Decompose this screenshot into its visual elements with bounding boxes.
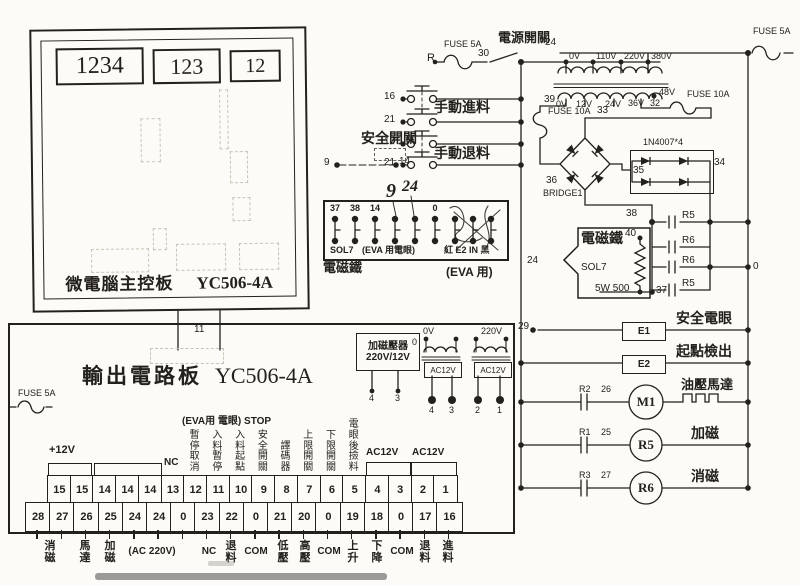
scan-artifact — [91, 248, 149, 273]
terminal-cell-bottom: 28 — [25, 502, 51, 532]
terminal-column-label: 譯碼器 — [279, 442, 292, 474]
terminal-bottom-label: 進料 — [441, 541, 455, 564]
safety-from-9: 9 — [324, 158, 330, 169]
terminal-cell-top: 14 — [115, 475, 140, 504]
bridge-name: BRIDGE1 — [543, 189, 583, 198]
terminal-cell-bottom: 22 — [219, 502, 245, 532]
terminal-cell-top: 15 — [47, 475, 72, 504]
terminal-cell-top: 6 — [320, 475, 345, 504]
terminal-column-label: 暫停取消 — [188, 431, 201, 474]
sol7-terminal-number: 14 — [367, 203, 383, 213]
terminal-cell-top: 7 — [297, 475, 322, 504]
wire-25-label: 25 — [601, 428, 611, 437]
magnetize-transformer-name: 加磁壓器 — [357, 337, 419, 352]
terminal-cell-bottom: 26 — [73, 502, 99, 532]
diode-block-box — [630, 150, 714, 194]
sol7-terminal-number: 0 — [427, 203, 443, 213]
output-label-demagnetize: 消磁 — [691, 469, 719, 484]
terminal-cell-bottom: 0 — [315, 502, 341, 532]
mt-terminal-3: 3 — [395, 394, 400, 403]
manual-retract-label: 手動退料 — [434, 146, 490, 161]
terminal-bottom-label: COM — [390, 546, 413, 557]
terminal-tick — [278, 530, 279, 539]
mini-t2-secondary: AC12V — [474, 362, 512, 378]
fuse-10a-left-label: FUSE 10A — [548, 107, 591, 116]
wire-26-label: 26 — [601, 385, 611, 394]
display-value: 1234 — [76, 53, 124, 81]
terminal-tick — [303, 530, 304, 539]
output-board-model: YC506-4A — [215, 364, 313, 387]
main-control-board: 1234 123 12 微電腦主控板 YC506-4A — [29, 26, 309, 312]
terminal-cell-bottom: 17 — [412, 502, 438, 532]
mini-t1-secondary-label: AC12V — [430, 366, 455, 375]
scan-artifact — [140, 118, 161, 162]
output-label-hydraulic-motor: 油壓馬達 — [681, 378, 733, 392]
line-r-label: R — [427, 53, 435, 65]
terminal-cell-bottom: 24 — [122, 502, 148, 532]
terminal-bottom-label: NC — [202, 546, 216, 557]
terminal-bottom-label: 退料 — [418, 541, 432, 564]
sol7-terminal-number: 37 — [327, 203, 343, 213]
terminal-tick — [424, 530, 425, 539]
mini-t-zero: 0 — [412, 338, 417, 347]
scan-smudge — [208, 561, 234, 566]
node-34-label: 34 — [714, 158, 725, 169]
scan-smudge — [95, 573, 387, 580]
mini-out-3: 3 — [449, 406, 454, 415]
terminal-column-label: 安全開關 — [256, 431, 269, 474]
output-label-safety-eye: 安全電眼 — [676, 311, 732, 326]
relay-r5: R5 — [630, 437, 662, 453]
terminal-cell-top: 14 — [92, 475, 117, 504]
scan-artifact — [176, 243, 226, 271]
terminal-tick — [182, 530, 183, 539]
terminal-cell-top: 15 — [70, 475, 95, 504]
terminal-tick — [351, 530, 352, 539]
terminal-tick — [157, 530, 158, 539]
terminal-cell-bottom: 16 — [436, 502, 462, 532]
terminal-bottom-label: 下降 — [370, 541, 384, 564]
terminal-tick — [133, 530, 134, 539]
sol7-block-name: SOL7 — [330, 246, 354, 255]
main-board-title: 微電腦主控板 — [65, 275, 173, 294]
terminal-cell-bottom: 0 — [243, 502, 269, 532]
device-id: M1 — [637, 394, 656, 410]
mini-t2-primary: 220V — [481, 327, 502, 336]
diode-part-label: 1N4007*4 — [643, 138, 683, 147]
board-fuse-label: FUSE 5A — [18, 389, 56, 398]
terminal-cell-top: 8 — [274, 475, 299, 504]
terminal-column-label: 入料起點 — [234, 431, 247, 474]
wire-24-label: 24 — [545, 38, 556, 49]
electromagnet-block-caption: 電磁鐵 — [323, 261, 362, 275]
fuse-10a-right-label: FUSE 10A — [687, 90, 730, 99]
bridge-number: 36 — [546, 176, 557, 187]
terminal-tick — [109, 530, 110, 539]
contact-r1-label: R1 — [579, 428, 591, 437]
sol7-label: SOL7 — [581, 263, 607, 274]
button-16-number: 16 — [384, 92, 395, 103]
motor-m1: M1 — [629, 394, 663, 410]
sol7-eva-label: (EVA 用電眼) — [362, 246, 415, 255]
display-value: 12 — [245, 54, 265, 77]
terminal-bottom-label: 低壓 — [276, 541, 290, 564]
terminal-tick — [206, 530, 207, 539]
terminal-bottom-label: 高壓 — [298, 541, 312, 564]
handwritten-9: 9 — [386, 181, 396, 202]
terminal-tick — [327, 530, 328, 539]
terminal-column-label: 上限開關 — [302, 431, 315, 474]
terminal-cell-bottom: 0 — [388, 502, 414, 532]
fuse-5a-top-right-label: FUSE 5A — [753, 27, 791, 36]
mini-out-1: 1 — [497, 406, 502, 415]
power-switch-label: 電源開關 — [498, 31, 550, 45]
terminal-bottom-label: (AC 220V) — [128, 546, 175, 557]
terminal-tick — [448, 530, 449, 539]
terminal-cell-bottom: 27 — [49, 502, 75, 532]
plus12v-label: +12V — [49, 445, 75, 457]
secondary-tap-36v: 36V — [628, 99, 644, 108]
wire-32-label: 32 — [650, 99, 660, 108]
terminal-cell-top: 4 — [365, 475, 390, 504]
terminal-bottom-label: 上升 — [346, 541, 360, 564]
sol7-scribbled-label: 紅 E2 IN 黑 — [444, 246, 490, 255]
terminal-cell-bottom: 21 — [267, 502, 293, 532]
wire-30-label: 30 — [478, 49, 489, 60]
node-38-label: 38 — [626, 209, 637, 220]
scanned-schematic-page: 1234 123 12 微電腦主控板 YC506-4A 11 FUSE 5A R… — [0, 0, 800, 585]
node-37-label: 37 — [656, 286, 667, 297]
terminal-column-label: 入料暫停 — [211, 431, 224, 474]
ac12v-label-a: AC12V — [366, 448, 398, 459]
output-label-origin-detect: 起點檢出 — [676, 344, 732, 359]
terminal-cell-bottom: 24 — [146, 502, 172, 532]
mini-out-2: 2 — [475, 406, 480, 415]
safety-to-14: 14 — [399, 157, 410, 168]
manual-feed-label: 手動進料 — [434, 100, 490, 115]
terminal-bottom-label: COM — [317, 546, 340, 557]
terminal-tick — [230, 530, 231, 539]
relay-box-e2: E2 — [622, 355, 666, 374]
mt-terminal-4: 4 — [369, 394, 374, 403]
scan-artifact — [230, 151, 248, 183]
primary-tap-380v: 380V — [651, 52, 672, 61]
relay-box-e1: E1 — [622, 322, 666, 341]
magnetize-transformer-box: 加磁壓器 220V/12V — [356, 333, 420, 371]
terminal-bottom-label: COM — [244, 546, 267, 557]
terminal-cell-top: 14 — [138, 475, 163, 504]
display-value: 123 — [170, 53, 203, 79]
scan-artifact — [219, 89, 229, 149]
contact-r2-label: R2 — [579, 385, 591, 394]
display-window-2digit: 12 — [230, 50, 281, 83]
scan-artifact — [232, 197, 250, 221]
wire-39-label: 39 — [544, 95, 555, 106]
eva-use-caption: (EVA 用) — [446, 266, 493, 279]
terminal-cell-bottom: 23 — [194, 502, 220, 532]
node-40-label: 40 — [625, 229, 636, 240]
sol7-terminal-number: 38 — [347, 203, 363, 213]
terminal-cell-top: 1 — [433, 475, 458, 504]
terminal-cell-top: 9 — [251, 475, 276, 504]
wire-27-label: 27 — [601, 471, 611, 480]
bus-24-label: 24 — [527, 256, 538, 267]
terminal-cell-bottom: 20 — [291, 502, 317, 532]
magnetize-transformer-ratio: 220V/12V — [357, 352, 419, 363]
terminal-cell-top: 5 — [342, 475, 367, 504]
device-id: E1 — [638, 326, 650, 337]
handwritten-24: 24 — [402, 179, 418, 196]
terminal-cell-top: 11 — [206, 475, 231, 504]
mini-t2-secondary-label: AC12V — [480, 366, 505, 375]
device-id: R5 — [638, 437, 654, 453]
terminal-tick — [399, 530, 400, 539]
terminal-cell-bottom: 25 — [98, 502, 124, 532]
ac12v-label-b: AC12V — [412, 448, 444, 459]
terminal-tick — [375, 530, 376, 539]
wire-33-label: 33 — [597, 106, 608, 117]
terminal-bottom-label: 馬達 — [78, 541, 92, 564]
safety-switch-label: 安全開關 — [361, 131, 417, 146]
wire-29-label: 29 — [518, 322, 529, 333]
primary-tap-110v: 110V — [596, 52, 616, 61]
scan-artifact — [153, 228, 167, 250]
device-id: E2 — [638, 359, 650, 370]
cap-label: R5 — [682, 210, 695, 221]
terminal-tick — [85, 530, 86, 539]
terminal-tick — [254, 530, 255, 539]
terminal-column-label: 下限開關 — [325, 431, 338, 474]
mini-out-4: 4 — [429, 406, 434, 415]
relay-r6: R6 — [630, 480, 662, 496]
electromagnet-name: 電磁鐵 — [581, 231, 623, 246]
terminal-column-label: 電眼後撿料 — [347, 420, 360, 474]
terminal-cell-top: 12 — [183, 475, 208, 504]
terminal-bottom-label: 加磁 — [103, 541, 117, 564]
primary-tap-220v: 220V — [624, 52, 645, 61]
output-label-magnetize: 加磁 — [691, 426, 719, 441]
wire-0-label: 0 — [753, 262, 759, 273]
button-21a-number: 21 — [384, 115, 395, 126]
terminal-cell-top: 3 — [388, 475, 413, 504]
terminal-tick — [61, 530, 62, 539]
secondary-tap-48v: 48V — [659, 88, 675, 97]
cap-label: R6 — [682, 235, 695, 246]
coil-resistor-label: 5W 500 — [595, 284, 629, 295]
scan-artifact — [239, 243, 279, 270]
terminal-bottom-label: 消磁 — [43, 541, 57, 564]
terminal-cell-top: 10 — [229, 475, 254, 504]
main-board-model: YC506-4A — [196, 274, 273, 293]
terminal-cell-bottom: 19 — [340, 502, 366, 532]
terminal-cell-bottom: 18 — [364, 502, 390, 532]
device-id: R6 — [638, 480, 654, 496]
primary-tap-0v: 0V — [569, 52, 580, 61]
eva-stop-header: (EVA用 電眼) STOP — [182, 417, 271, 428]
output-board-title: 輸出電路板 — [82, 366, 202, 388]
terminal-cell-top: 13 — [161, 475, 186, 504]
terminal-tick — [36, 530, 37, 539]
display-window-4digit: 1234 — [56, 47, 144, 85]
display-window-3digit: 123 — [153, 48, 221, 84]
cap-label: R6 — [682, 255, 695, 266]
cap-label: R5 — [682, 278, 695, 289]
contact-r3-label: R3 — [579, 471, 591, 480]
mini-t1-secondary: AC12V — [424, 362, 462, 378]
nc-top-label: NC — [164, 458, 178, 469]
terminal-cell-top: 2 — [411, 475, 436, 504]
terminal-cell-bottom: 0 — [170, 502, 196, 532]
mini-t1-primary: 0V — [423, 327, 434, 336]
fuse-5a-input-label: FUSE 5A — [444, 40, 482, 49]
